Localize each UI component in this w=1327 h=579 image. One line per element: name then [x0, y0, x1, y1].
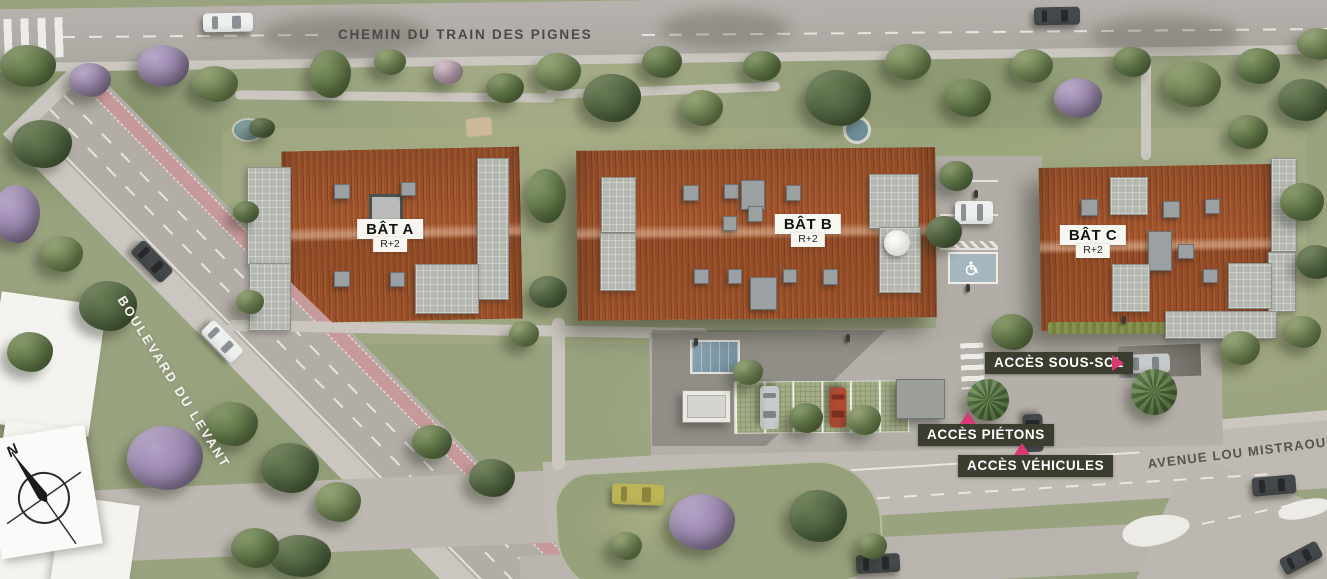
roof-skylight — [723, 216, 737, 231]
car — [1251, 474, 1296, 497]
building-c-floors: R+2 — [1076, 244, 1110, 258]
car-window — [1042, 10, 1048, 23]
tree — [847, 405, 881, 435]
tree — [192, 66, 238, 102]
tree-shadow — [660, 10, 790, 48]
car-window — [763, 411, 777, 418]
tree — [1278, 79, 1327, 121]
roof-skylight — [1163, 201, 1180, 218]
technical-box — [896, 379, 945, 419]
tree — [789, 490, 847, 542]
car — [955, 201, 993, 224]
car-window — [150, 259, 165, 274]
sandbox — [465, 117, 492, 137]
site-plan: N BÂT A R+2 BÂT B R+2 BÂT C R+2 CHEMIN D… — [0, 0, 1327, 579]
access-vehicles-badge: ACCÈS VÉHICULES — [958, 455, 1113, 477]
tree — [1113, 47, 1151, 77]
car-window — [977, 204, 983, 221]
tree — [1011, 49, 1053, 83]
tree — [945, 79, 991, 117]
car-window — [763, 393, 777, 398]
car-window — [961, 204, 966, 221]
tree — [233, 201, 259, 223]
tree — [610, 532, 642, 560]
roof-skylight — [1205, 199, 1220, 214]
tree — [529, 276, 567, 308]
car — [203, 13, 253, 33]
tree — [261, 443, 319, 493]
roof-terrace — [1165, 311, 1277, 339]
walkway-to-avenue — [552, 318, 565, 470]
tree — [1297, 28, 1327, 60]
car-window — [1286, 556, 1297, 570]
tree — [309, 50, 351, 98]
tree — [681, 90, 723, 126]
street-label-chemin: CHEMIN DU TRAIN DES PIGNES — [338, 27, 593, 42]
roof-skylight — [1148, 231, 1172, 271]
car — [612, 483, 665, 506]
roof-skylight — [334, 271, 350, 287]
roof-skylight — [724, 184, 739, 199]
pedestrian — [846, 334, 850, 342]
garden-path — [545, 82, 780, 99]
direction-arrow-icon — [1112, 355, 1124, 371]
tree — [374, 49, 406, 75]
roof-skylight — [683, 185, 699, 201]
tree — [231, 528, 279, 568]
access-basement-badge: ACCÈS SOUS-SOL — [985, 352, 1133, 374]
compass-paper: N — [0, 425, 103, 559]
tree — [583, 74, 641, 122]
roof-skylight — [750, 277, 777, 310]
tree — [1283, 316, 1321, 348]
tree — [535, 53, 581, 91]
roof-terrace — [477, 158, 509, 300]
tree — [236, 290, 264, 314]
tree — [127, 426, 203, 490]
tree — [1228, 115, 1268, 149]
tree — [137, 45, 189, 87]
building-b-name: BÂT B — [775, 214, 841, 234]
palm-tree — [1131, 369, 1177, 415]
building-a-floors: R+2 — [373, 238, 407, 252]
car-window — [642, 487, 651, 502]
tree — [1220, 331, 1260, 365]
tree — [1280, 183, 1324, 221]
tree — [885, 44, 931, 80]
building-b-label: BÂT B R+2 — [775, 214, 841, 247]
car-window — [881, 556, 889, 570]
tree — [991, 314, 1033, 350]
car-window — [232, 15, 241, 29]
tree — [1163, 61, 1221, 107]
tree — [486, 73, 524, 103]
car-window — [832, 394, 844, 399]
building-b-floors: R+2 — [791, 233, 825, 247]
roof-skylight — [748, 206, 763, 222]
tree — [939, 161, 973, 191]
roof-terrace — [1112, 264, 1150, 312]
direction-arrow-icon — [1014, 443, 1030, 455]
pedestrian — [974, 190, 978, 198]
disabled-parking-spot — [948, 252, 998, 284]
car-window — [1277, 478, 1286, 492]
building-a-label: BÂT A R+2 — [357, 219, 423, 252]
tree — [249, 118, 275, 138]
car — [760, 386, 779, 429]
building-a-name: BÂT A — [357, 219, 423, 239]
roof-skylight — [390, 272, 405, 287]
roof-skylight — [694, 269, 709, 284]
tree — [469, 459, 515, 497]
tree — [642, 46, 682, 78]
roof-terrace — [1228, 263, 1272, 309]
tree — [1236, 48, 1280, 84]
tree — [315, 482, 361, 522]
roof-skylight — [823, 269, 838, 285]
building-c-label: BÂT C R+2 — [1060, 225, 1126, 258]
roof-skylight — [728, 269, 742, 284]
tree — [743, 51, 781, 81]
roof-skylight — [401, 182, 416, 196]
tree — [412, 425, 452, 459]
parasol — [884, 230, 910, 256]
roof-terrace — [1110, 177, 1148, 215]
pedestrian — [1122, 316, 1126, 324]
car-window — [863, 557, 869, 571]
wheelchair-icon — [964, 260, 980, 276]
tree — [0, 45, 56, 87]
roof-terrace — [601, 177, 636, 233]
roof-terrace — [600, 233, 636, 291]
tree — [1054, 78, 1102, 118]
tree — [733, 359, 763, 385]
car — [1034, 7, 1080, 26]
car-window — [1133, 357, 1139, 371]
pedestrian — [966, 284, 970, 292]
tree — [857, 533, 887, 559]
tree — [69, 63, 111, 97]
tree — [805, 70, 871, 126]
tree — [789, 403, 823, 433]
car-window — [1301, 547, 1313, 562]
car — [830, 388, 847, 428]
roof-terrace — [415, 264, 479, 314]
tree — [12, 120, 72, 168]
car-window — [1259, 479, 1265, 493]
access-pedestrians-badge: ACCÈS PIÉTONS — [918, 424, 1054, 446]
car-window — [211, 16, 217, 30]
roof-skylight — [783, 269, 797, 283]
car-window — [621, 486, 628, 501]
tree — [669, 494, 735, 550]
roof-skylight — [1081, 199, 1098, 216]
car-window — [220, 339, 235, 354]
car-window — [207, 326, 220, 339]
tree — [526, 169, 566, 223]
roof-skylight — [1203, 269, 1218, 283]
roof-terrace — [1268, 252, 1296, 312]
tree — [926, 216, 962, 248]
tree — [0, 185, 40, 243]
roof-skylight — [334, 184, 350, 199]
car-window — [1061, 9, 1069, 22]
tree — [7, 332, 53, 372]
roof-skylight — [1178, 244, 1194, 259]
car-window — [137, 246, 150, 259]
roof-terrace — [869, 174, 919, 229]
tree-shadow — [1090, 16, 1240, 56]
tree — [433, 60, 463, 84]
tree — [41, 236, 83, 272]
tree — [509, 321, 539, 347]
roof-skylight — [786, 185, 801, 201]
building-c-name: BÂT C — [1060, 225, 1126, 245]
garage-box — [682, 390, 731, 423]
car-window — [832, 411, 844, 418]
pedestrian — [694, 338, 698, 346]
direction-arrow-icon — [960, 412, 976, 424]
